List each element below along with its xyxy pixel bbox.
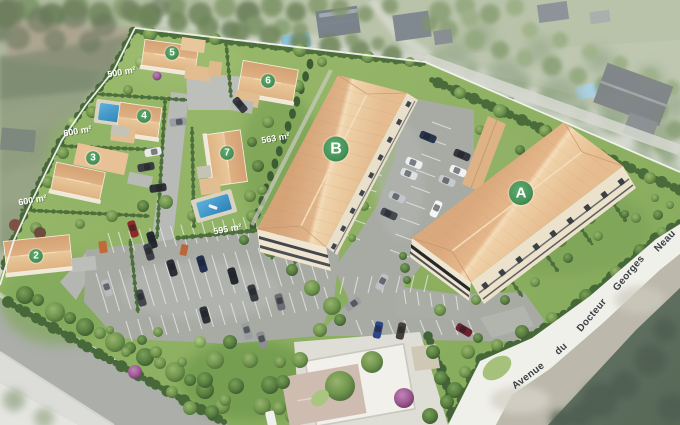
- svg-text:A: A: [516, 185, 527, 202]
- svg-text:7: 7: [224, 148, 230, 159]
- svg-text:2: 2: [33, 251, 39, 262]
- svg-text:3: 3: [90, 153, 96, 164]
- svg-text:4: 4: [141, 111, 147, 122]
- svg-text:5: 5: [169, 48, 175, 59]
- svg-text:6: 6: [265, 76, 271, 87]
- svg-text:B: B: [330, 141, 342, 158]
